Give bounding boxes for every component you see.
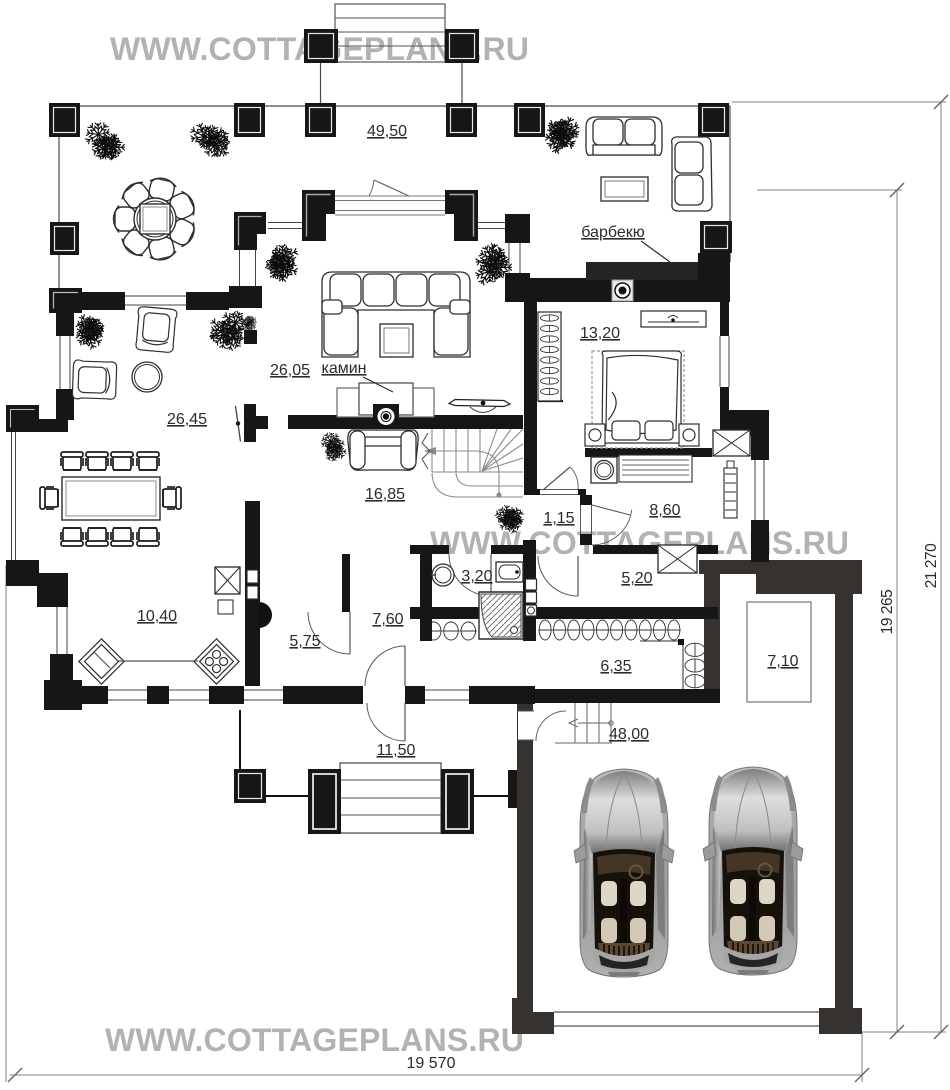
svg-text:49,50: 49,50 (367, 123, 407, 140)
svg-text:26,05: 26,05 (270, 362, 310, 379)
svg-text:11,50: 11,50 (377, 742, 416, 759)
svg-text:6,35: 6,35 (600, 658, 631, 675)
svg-text:3,20: 3,20 (461, 568, 492, 585)
svg-text:10,40: 10,40 (137, 608, 177, 625)
svg-text:48,00: 48,00 (609, 726, 649, 743)
svg-text:21 270: 21 270 (923, 543, 940, 588)
svg-text:7,60: 7,60 (372, 611, 403, 628)
svg-text:1,15: 1,15 (543, 510, 574, 527)
svg-text:19 265: 19 265 (879, 590, 896, 634)
svg-text:16,85: 16,85 (365, 486, 405, 503)
svg-text:5,75: 5,75 (289, 633, 320, 650)
svg-text:барбекю: барбекю (581, 224, 644, 241)
svg-text:камин: камин (321, 360, 366, 377)
svg-text:19 570: 19 570 (407, 1055, 456, 1072)
svg-text:5,20: 5,20 (621, 570, 652, 587)
svg-text:8,60: 8,60 (649, 502, 680, 519)
svg-text:WWW.COTTAGEPLANS.RU: WWW.COTTAGEPLANS.RU (430, 525, 849, 561)
svg-text:7,10: 7,10 (767, 653, 798, 670)
svg-text:26,45: 26,45 (167, 411, 207, 428)
svg-text:WWW.COTTAGEPLANS.RU: WWW.COTTAGEPLANS.RU (105, 1022, 524, 1058)
svg-text:13,20: 13,20 (580, 325, 620, 342)
